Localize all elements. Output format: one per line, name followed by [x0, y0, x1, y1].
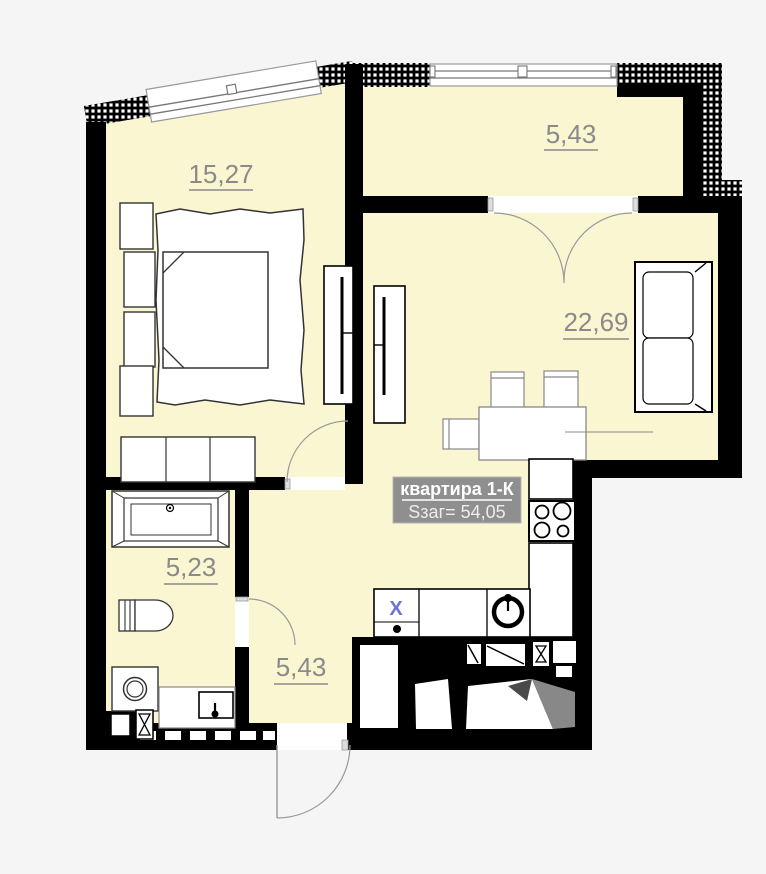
loggia-window: [430, 64, 617, 86]
nightstand-top: [120, 203, 153, 249]
sofa: [635, 262, 712, 412]
apartment-badge: квартира 1-К Sзаг= 54,05: [393, 477, 521, 523]
shaft-box: [111, 714, 130, 736]
dot-marker: [393, 625, 401, 633]
wall-loggia-living-right: [638, 196, 740, 213]
wall-bathroom-top: [235, 489, 249, 597]
nightstand-bottom: [120, 366, 153, 416]
appliance-x-marker: X: [389, 598, 403, 620]
wall-loggia-living-left: [348, 196, 488, 213]
pillow-1: [124, 252, 155, 307]
room-label-bathroom: 5,23: [166, 552, 217, 582]
counter-bottom: X: [374, 589, 530, 637]
tv-bedroom: [324, 266, 353, 404]
pillow-2: [124, 312, 155, 367]
bed-mattress: [163, 252, 268, 368]
apartment-total-area: Sзаг= 54,05: [408, 502, 505, 522]
wall-hatch-right-strip: [702, 63, 722, 196]
wall-kitchen-top: [573, 460, 742, 478]
floor-plan: X: [0, 0, 766, 874]
dining-table: [479, 407, 586, 460]
bathtub: [112, 491, 229, 547]
counter-right: [529, 543, 573, 637]
tv-living: [374, 286, 405, 423]
stove: [529, 501, 575, 541]
dresser: [121, 437, 255, 482]
vanity-sink: [159, 687, 235, 728]
vent-shaft-bathroom: [136, 710, 153, 739]
room-label-bedroom: 15,27: [188, 159, 253, 189]
toilet: [119, 600, 173, 631]
wall-hatch-step: [702, 180, 742, 196]
room-label-hallway: 5,43: [276, 652, 327, 682]
wall-left: [86, 122, 106, 750]
wall-loggia-right-inner: [683, 85, 702, 196]
washing-machine: [112, 667, 158, 711]
fridge: [529, 459, 573, 499]
room-label-loggia: 5,43: [546, 119, 597, 149]
floor-plan-canvas: X: [0, 0, 766, 874]
room-label-living: 22,69: [563, 307, 628, 337]
wall-living-right: [718, 196, 742, 478]
closet-niche: [360, 645, 398, 728]
apartment-title: квартира 1-К: [400, 479, 514, 499]
stairs: [415, 679, 575, 729]
